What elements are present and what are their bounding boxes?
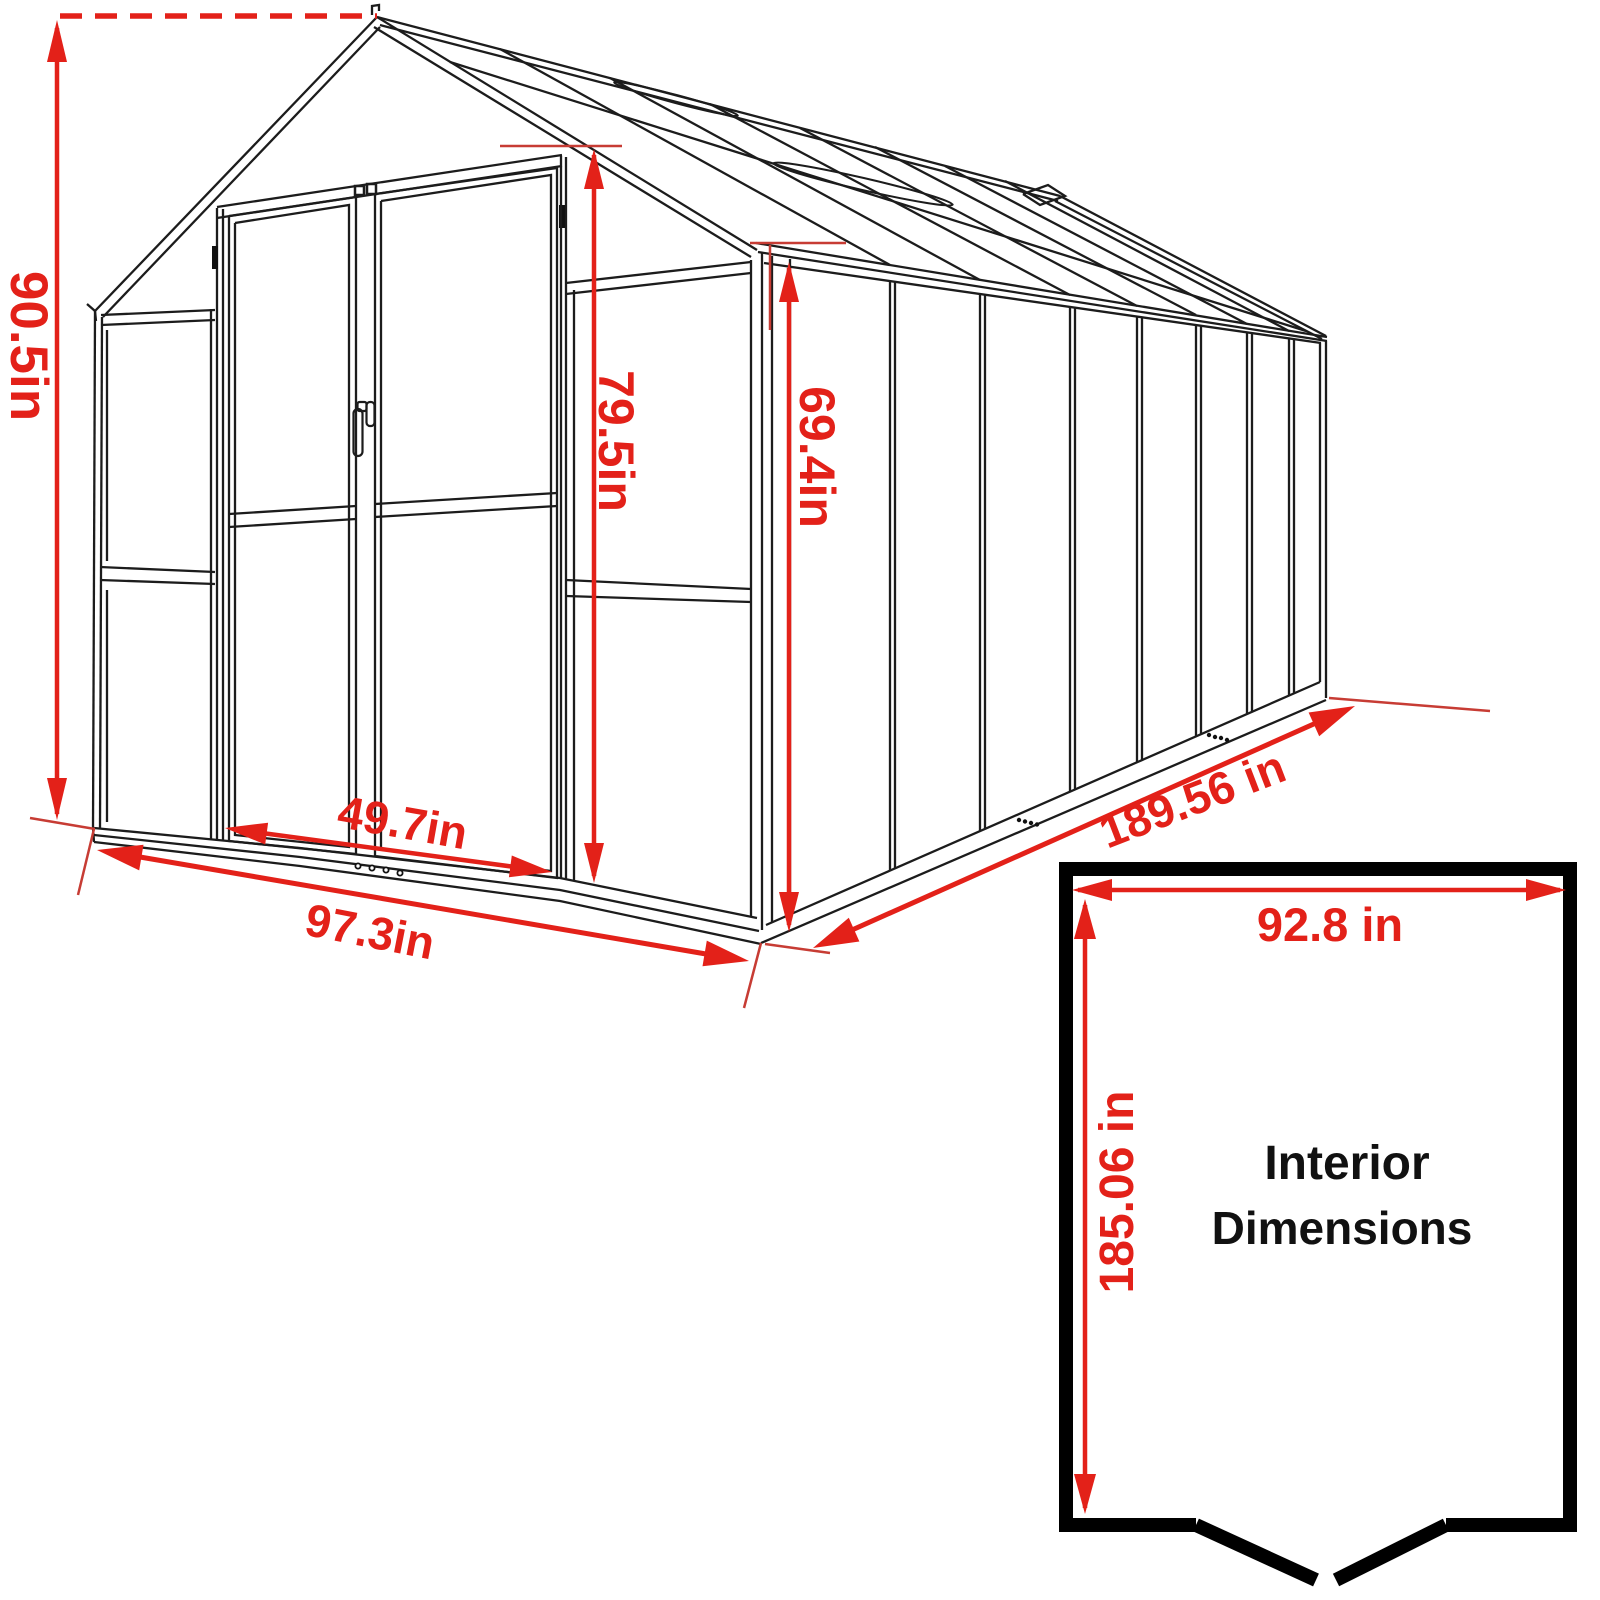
svg-text:Dimensions: Dimensions xyxy=(1212,1202,1473,1254)
svg-text:90.5in: 90.5in xyxy=(0,271,58,421)
svg-text:Interior: Interior xyxy=(1264,1137,1429,1190)
svg-text:92.8 in: 92.8 in xyxy=(1257,898,1403,951)
svg-text:79.5in: 79.5in xyxy=(588,370,644,512)
svg-text:69.4in: 69.4in xyxy=(789,386,845,528)
svg-text:185.06 in: 185.06 in xyxy=(1091,1091,1144,1294)
